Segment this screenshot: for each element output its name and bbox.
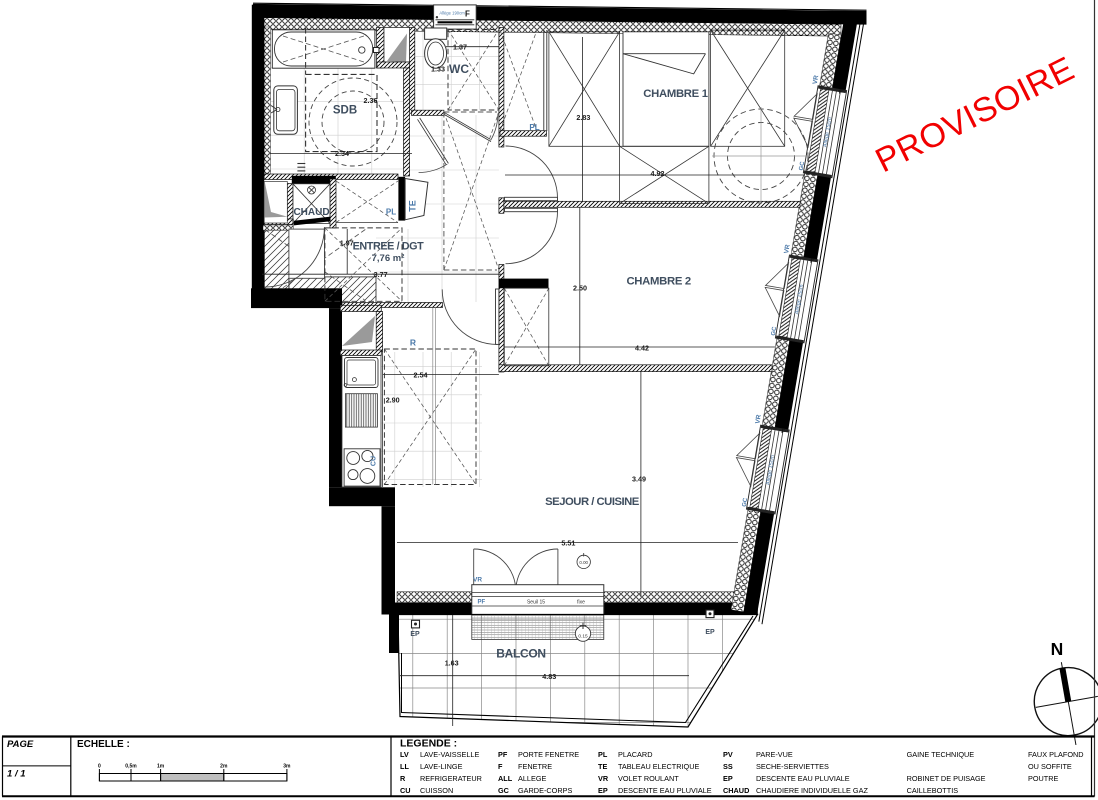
svg-text:CHAUDIERE INDIVIDUELLE GAZ: CHAUDIERE INDIVIDUELLE GAZ (756, 786, 868, 795)
svg-text:EP: EP (723, 774, 733, 783)
svg-text:1.37: 1.37 (453, 42, 467, 51)
svg-text:CHAMBRE 2: CHAMBRE 2 (626, 276, 690, 288)
svg-text:GC: GC (498, 786, 510, 795)
svg-text:N: N (1051, 639, 1064, 659)
svg-text:2.36: 2.36 (364, 96, 378, 105)
svg-text:0,5m: 0,5m (125, 764, 137, 770)
svg-text:PL: PL (598, 750, 608, 759)
svg-text:7,76 m²: 7,76 m² (372, 253, 405, 264)
svg-text:CU: CU (371, 456, 378, 466)
svg-text:PORTE FENETRE: PORTE FENETRE (518, 750, 579, 759)
svg-text:EP: EP (410, 631, 420, 638)
svg-text:LAVE-VAISSELLE: LAVE-VAISSELLE (420, 750, 479, 759)
svg-text:3.77: 3.77 (374, 270, 388, 279)
svg-text:4.42: 4.42 (635, 343, 649, 352)
svg-text:ENTREE / DGT: ENTREE / DGT (353, 241, 425, 253)
svg-text:0.00: 0.00 (579, 560, 588, 565)
svg-text:R: R (400, 774, 406, 783)
svg-text:TE: TE (408, 200, 418, 212)
svg-text:4.92: 4.92 (651, 169, 665, 178)
svg-text:SS: SS (723, 762, 733, 771)
svg-text:OU SOFFITE: OU SOFFITE (1028, 762, 1072, 771)
svg-text:ECHELLE :: ECHELLE : (77, 739, 130, 750)
svg-text:2.50: 2.50 (573, 284, 587, 293)
svg-text:VOLET ROULANT: VOLET ROULANT (618, 774, 679, 783)
svg-text:CUISSON: CUISSON (420, 786, 453, 795)
svg-text:PL: PL (529, 123, 539, 132)
svg-text:LEGENDE :: LEGENDE : (400, 738, 457, 750)
svg-text:PLACARD: PLACARD (618, 750, 652, 759)
svg-text:4.83: 4.83 (542, 672, 556, 681)
svg-text:WC: WC (449, 62, 469, 76)
svg-text:PF: PF (478, 600, 486, 606)
svg-text:CHAUD: CHAUD (723, 786, 749, 795)
svg-text:1.97: 1.97 (340, 239, 354, 248)
svg-text:DESCENTE EAU PLUVIALE: DESCENTE EAU PLUVIALE (618, 786, 712, 795)
svg-text:TABLEAU ELECTRIQUE: TABLEAU ELECTRIQUE (618, 762, 699, 771)
svg-text:1 / 1: 1 / 1 (7, 769, 26, 780)
svg-text:FENETRE: FENETRE (518, 762, 552, 771)
svg-text:2.90: 2.90 (386, 396, 400, 405)
svg-text:LAVE-LINGE: LAVE-LINGE (420, 762, 463, 771)
svg-text:2m: 2m (220, 764, 228, 770)
svg-text:SECHE-SERVIETTES: SECHE-SERVIETTES (756, 762, 829, 771)
svg-text:POUTRE: POUTRE (1028, 774, 1059, 783)
svg-text:LV: LV (400, 750, 409, 759)
svg-text:PF: PF (498, 750, 508, 759)
svg-text:F: F (498, 762, 503, 771)
svg-text:1.63: 1.63 (445, 658, 459, 667)
svg-text:Seuil 15: Seuil 15 (527, 600, 545, 606)
svg-text:EP: EP (598, 786, 608, 795)
svg-text:SDB: SDB (333, 105, 357, 117)
svg-text:5.51: 5.51 (561, 539, 575, 548)
svg-text:1m: 1m (157, 764, 165, 770)
svg-text:F: F (465, 10, 470, 19)
svg-text:SEJOUR / CUISINE: SEJOUR / CUISINE (545, 496, 640, 508)
svg-text:FAUX PLAFOND: FAUX PLAFOND (1028, 750, 1084, 759)
svg-text:CHAMBRE 1: CHAMBRE 1 (643, 88, 707, 100)
svg-text:PARE-VUE: PARE-VUE (756, 750, 793, 759)
svg-text:ALLEGE: ALLEGE (518, 774, 547, 783)
svg-text:PL: PL (386, 208, 396, 217)
svg-text:EP: EP (705, 629, 715, 636)
svg-text:Allège 190cm: Allège 190cm (439, 11, 465, 16)
svg-text:REFRIGERATEUR: REFRIGERATEUR (420, 774, 482, 783)
svg-text:CHAUD: CHAUD (293, 207, 329, 218)
svg-text:CAILLEBOTTIS: CAILLEBOTTIS (907, 786, 959, 795)
svg-text:DESCENTE EAU PLUVIALE: DESCENTE EAU PLUVIALE (756, 774, 850, 783)
svg-text:LL: LL (400, 762, 409, 771)
svg-text:PAGE: PAGE (7, 739, 34, 750)
svg-text:0: 0 (98, 764, 101, 770)
svg-text:0.15: 0.15 (578, 634, 588, 640)
svg-text:2.34: 2.34 (335, 149, 349, 158)
svg-text:3.49: 3.49 (632, 475, 646, 484)
svg-text:TE: TE (598, 762, 607, 771)
svg-text:3m: 3m (283, 764, 291, 770)
svg-text:GARDE-CORPS: GARDE-CORPS (518, 786, 572, 795)
svg-text:2.54: 2.54 (414, 371, 428, 380)
svg-text:GAINE TECHNIQUE: GAINE TECHNIQUE (907, 750, 975, 759)
svg-text:BALCON: BALCON (496, 647, 546, 661)
svg-text:1.33: 1.33 (431, 65, 445, 74)
svg-text:R: R (410, 338, 416, 348)
svg-text:PV: PV (723, 750, 733, 759)
svg-text:2.83: 2.83 (576, 113, 590, 122)
svg-text:ALL: ALL (498, 774, 513, 783)
svg-text:CU: CU (400, 786, 411, 795)
svg-text:ROBINET DE PUISAGE: ROBINET DE PUISAGE (907, 774, 986, 783)
svg-text:fixe: fixe (577, 600, 585, 606)
svg-text:VR: VR (598, 774, 609, 783)
svg-text:VR: VR (473, 577, 482, 584)
